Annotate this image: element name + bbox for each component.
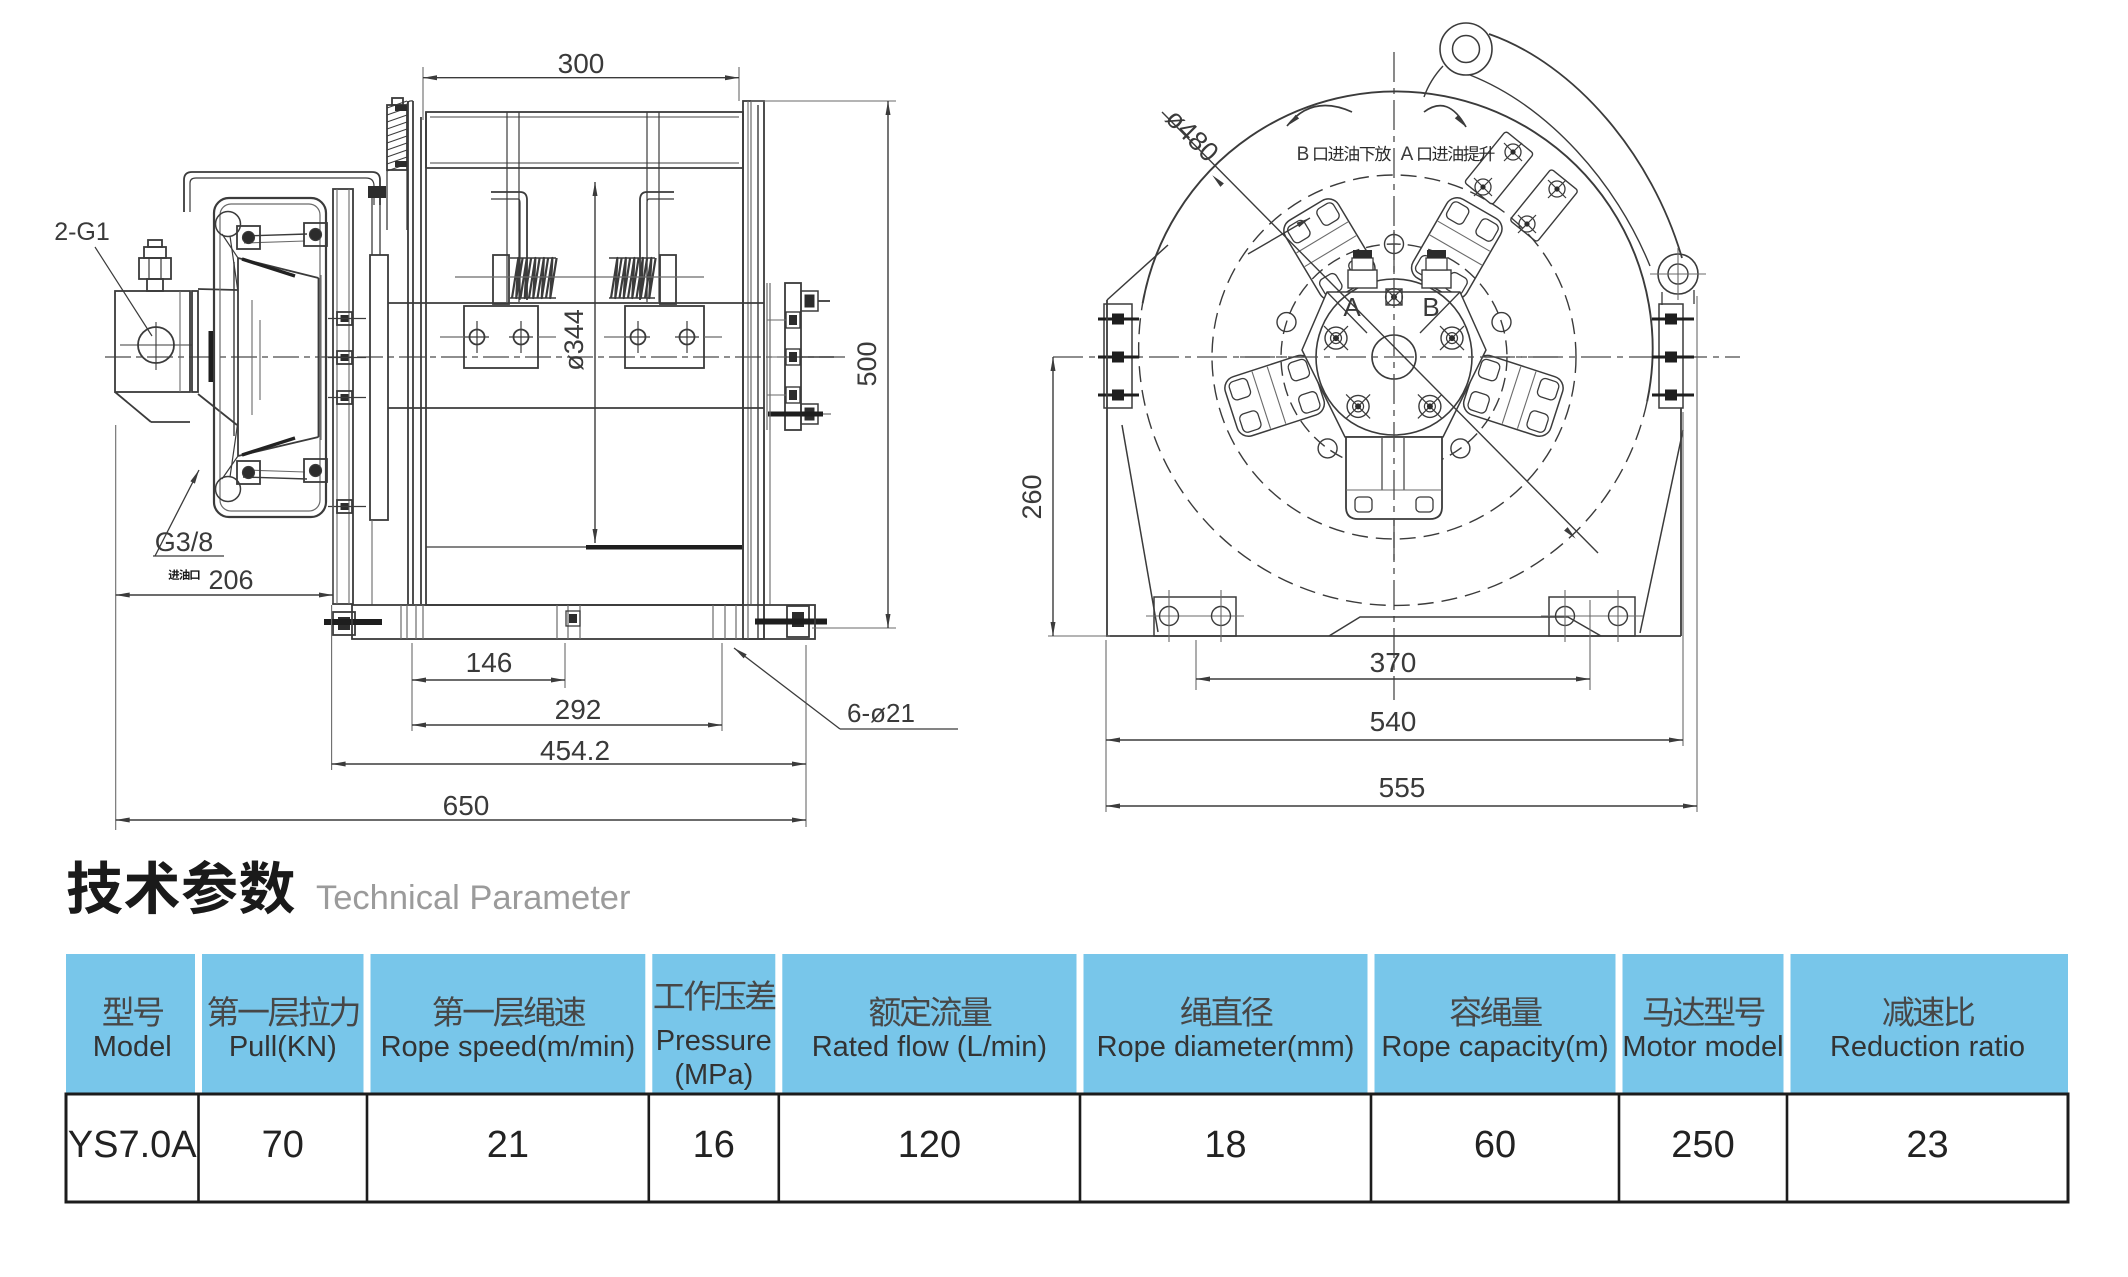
svg-text:21: 21 <box>487 1124 529 1166</box>
svg-text:A: A <box>1343 292 1361 322</box>
svg-text:Reduction ratio: Reduction ratio <box>1830 1031 2025 1063</box>
svg-text:260: 260 <box>1017 474 1047 519</box>
svg-text:540: 540 <box>1370 706 1417 737</box>
svg-text:Pressure: Pressure <box>656 1025 772 1057</box>
svg-text:6-ø21: 6-ø21 <box>847 698 915 728</box>
svg-text:Pull(KN): Pull(KN) <box>229 1031 337 1063</box>
svg-text:120: 120 <box>898 1124 961 1166</box>
svg-text:555: 555 <box>1379 772 1426 803</box>
svg-text:292: 292 <box>555 694 602 725</box>
svg-text:250: 250 <box>1671 1124 1734 1166</box>
svg-text:Motor model: Motor model <box>1622 1031 1783 1063</box>
svg-text:23: 23 <box>1906 1124 1948 1166</box>
svg-text:Rated flow (L/min): Rated flow (L/min) <box>812 1031 1047 1063</box>
svg-text:Rope capacity(m): Rope capacity(m) <box>1381 1031 1608 1063</box>
svg-text:18: 18 <box>1204 1124 1246 1166</box>
svg-text:Model: Model <box>93 1031 172 1063</box>
svg-text:146: 146 <box>466 647 513 678</box>
svg-text:454.2: 454.2 <box>540 735 610 766</box>
svg-text:B: B <box>1422 292 1439 322</box>
svg-text:2-G1: 2-G1 <box>54 218 110 246</box>
svg-text:Rope speed(m/min): Rope speed(m/min) <box>381 1031 636 1063</box>
svg-text:300: 300 <box>558 48 605 79</box>
svg-text:ø344: ø344 <box>559 309 589 371</box>
svg-text:(MPa): (MPa) <box>674 1059 753 1091</box>
svg-text:70: 70 <box>262 1124 304 1166</box>
svg-text:YS7.0A: YS7.0A <box>68 1124 198 1166</box>
svg-text:16: 16 <box>693 1124 735 1166</box>
svg-text:206: 206 <box>208 565 253 595</box>
svg-text:B: B <box>1297 144 1310 165</box>
svg-text:60: 60 <box>1474 1124 1516 1166</box>
svg-text:500: 500 <box>852 341 882 386</box>
svg-text:A: A <box>1401 144 1414 165</box>
svg-text:G3/8: G3/8 <box>155 527 214 557</box>
svg-text:650: 650 <box>443 790 490 821</box>
svg-text:Technical Parameter: Technical Parameter <box>316 879 630 917</box>
svg-text:Rope diameter(mm): Rope diameter(mm) <box>1097 1031 1355 1063</box>
svg-text:370: 370 <box>1370 647 1417 678</box>
